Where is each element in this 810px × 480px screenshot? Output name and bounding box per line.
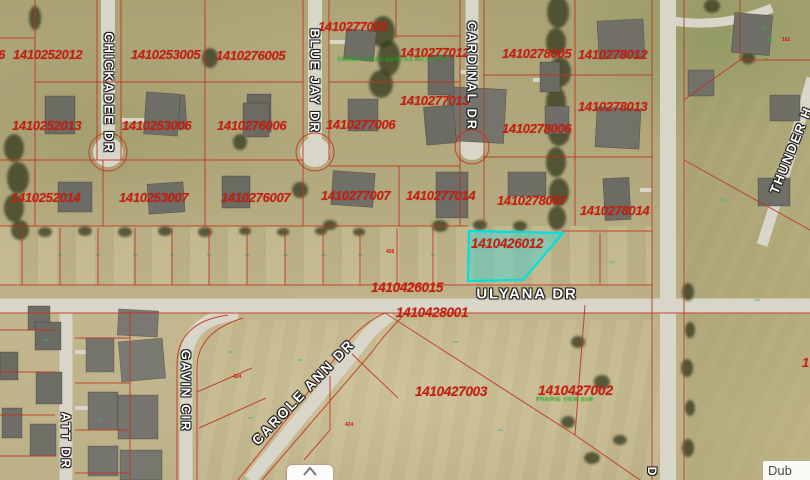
parcel-label-6: 6	[0, 47, 5, 62]
parcel-label-1410277007: 1410277007	[321, 188, 390, 203]
parcel-label-1410428001: 1410428001	[396, 305, 468, 320]
street-label-d: D	[645, 467, 659, 477]
collapse-control[interactable]	[287, 465, 333, 480]
parcel-label-1410278005: 1410278005	[502, 46, 571, 61]
street-label-att-dr: ATT DR	[59, 412, 74, 470]
parcel-label-1410278006: 1410278006	[502, 121, 571, 136]
street-label-gavin-cir: GAVIN CIR	[179, 350, 194, 432]
attribution-watermark: Dub	[763, 461, 810, 480]
parcel-label-1410278013: 1410278013	[578, 99, 647, 114]
street-label-thunder-h: THUNDER H	[767, 104, 810, 196]
parcel-label-1410276005: 1410276005	[216, 48, 285, 63]
street-label-carole-ann-dr: CAROLE ANN DR	[249, 336, 358, 448]
green-annotation: PRAIRIE VIEW SUB	[536, 397, 593, 403]
parcel-label-1410252013: 1410252013	[12, 118, 81, 133]
street-label-cardinal-dr: CARDINAL DR	[465, 21, 480, 131]
parcel-label-1410252014: 1410252014	[11, 190, 80, 205]
street-label-blue-jay-dr: BLUE JAY DR	[308, 28, 323, 133]
parcel-label-1410253005: 1410253005	[131, 47, 200, 62]
parcel-label-1410276007: 1410276007	[221, 190, 290, 205]
parcel-label-1410278014: 1410278014	[580, 203, 649, 218]
parcel-label-1410277013: 1410277013	[400, 93, 469, 108]
parcel-label-1410253007: 1410253007	[119, 190, 188, 205]
street-label-chickadee-dr: CHICKADEE DR	[102, 32, 117, 153]
parcel-label-1410278012: 1410278012	[578, 47, 647, 62]
tiny-label-161: 161	[782, 37, 790, 43]
parcel-label-1410426015: 1410426015	[371, 280, 443, 295]
chevron-up-icon	[299, 465, 321, 477]
tiny-label-426: 426	[386, 249, 394, 255]
tiny-label-424: 424	[233, 374, 241, 380]
map-labels: 1410252012141025300514102760051410277005…	[0, 0, 810, 480]
parcel-label-1410277005: 1410277005	[318, 19, 387, 34]
parcel-label-1410276006: 1410276006	[217, 118, 286, 133]
tiny-label-424: 424	[345, 422, 353, 428]
parcel-label-1410427003: 1410427003	[415, 384, 487, 399]
parcel-label-1: 1	[802, 355, 809, 370]
parcel-label-1410427002: 1410427002	[538, 382, 613, 398]
street-label-ulyana-dr: ULYANA DR	[476, 286, 577, 303]
parcel-label-1410277014: 1410277014	[406, 188, 475, 203]
parcel-label-1410426012: 1410426012	[471, 236, 543, 251]
parcel-label-1410278007: 1410278007	[497, 193, 566, 208]
gis-parcel-map[interactable]: 1410252012141025300514102760051410277005…	[0, 0, 810, 480]
green-annotation: TIMBER CREEK ESTATES NO 2 LOT 1	[337, 57, 449, 63]
parcel-label-1410277006: 1410277006	[326, 117, 395, 132]
parcel-label-1410253006: 1410253006	[122, 118, 191, 133]
parcel-label-1410252012: 1410252012	[13, 47, 82, 62]
